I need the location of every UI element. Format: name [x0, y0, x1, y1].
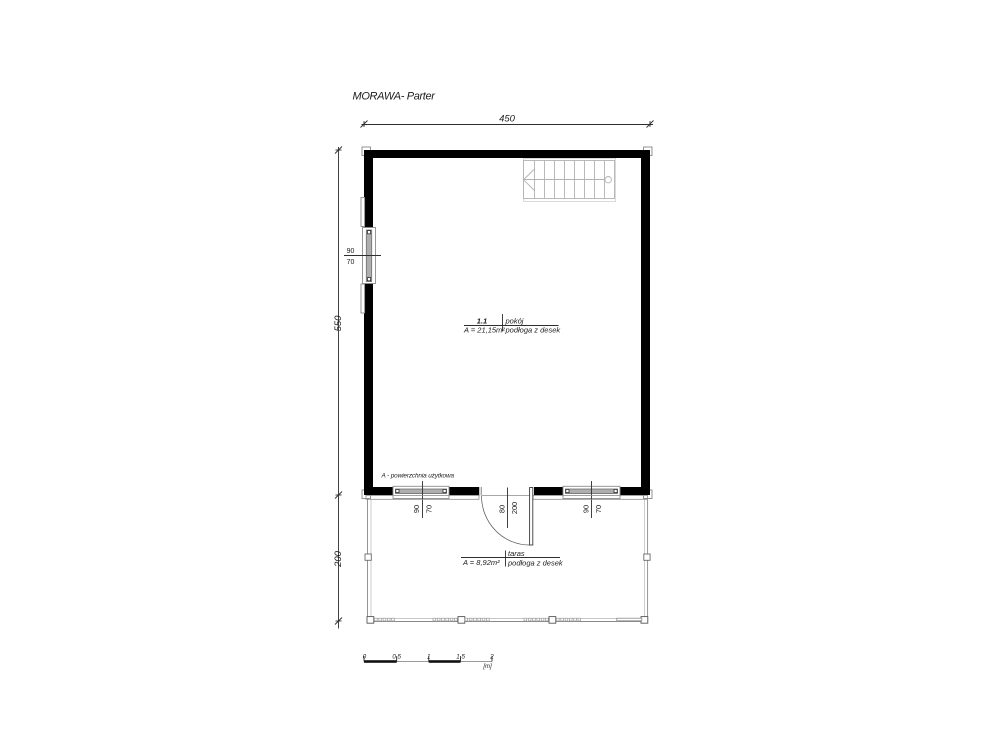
svg-text:[m]: [m] — [482, 664, 492, 670]
svg-text:0,5: 0,5 — [392, 654, 401, 661]
svg-text:podłoga z desek: podłoga z desek — [505, 326, 562, 335]
svg-text:70: 70 — [594, 505, 603, 513]
svg-text:1.1: 1.1 — [477, 317, 487, 326]
svg-text:200: 200 — [510, 502, 519, 514]
svg-text:70: 70 — [425, 505, 434, 513]
svg-text:550: 550 — [333, 315, 344, 332]
svg-text:90: 90 — [582, 505, 591, 513]
svg-text:pokój: pokój — [505, 317, 524, 326]
svg-text:2: 2 — [489, 654, 494, 661]
svg-text:90: 90 — [412, 505, 421, 513]
svg-text:0: 0 — [363, 654, 367, 661]
svg-text:A - powierzchnia użytkowa: A - powierzchnia użytkowa — [381, 473, 455, 480]
svg-text:A = 21,15m²: A = 21,15m² — [463, 326, 505, 335]
svg-text:200: 200 — [333, 550, 344, 568]
svg-text:podłoga z desek: podłoga z desek — [507, 559, 564, 568]
svg-text:taras: taras — [508, 549, 525, 558]
svg-text:A = 8,92m²: A = 8,92m² — [462, 558, 500, 567]
svg-text:70: 70 — [347, 259, 355, 266]
svg-text:1,5: 1,5 — [456, 654, 465, 661]
svg-text:MORAWA- Parter: MORAWA- Parter — [353, 91, 437, 103]
svg-text:1: 1 — [427, 654, 430, 661]
svg-text:450: 450 — [499, 114, 516, 125]
svg-text:90: 90 — [347, 248, 355, 255]
svg-text:80: 80 — [498, 505, 507, 513]
